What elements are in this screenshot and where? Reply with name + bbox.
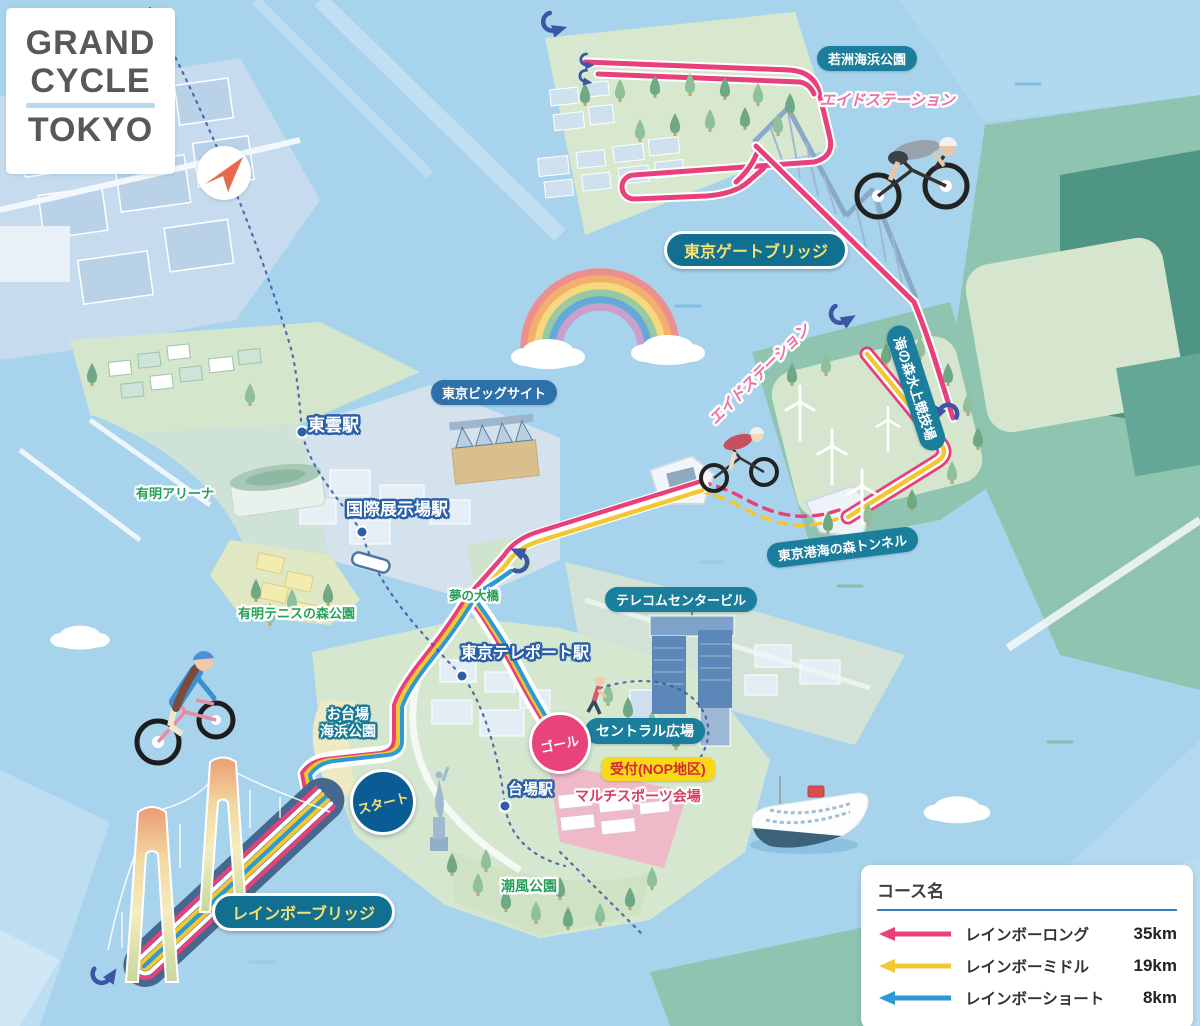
course-long-distance: 35km (1121, 924, 1177, 944)
label-central-plaza: セントラル広場 (585, 718, 705, 744)
label-reception: 受付(NOP地区) (601, 757, 715, 781)
logo-wave-decoration (26, 103, 155, 108)
course-middle-distance: 19km (1121, 956, 1177, 976)
label-daiba-station: 台場駅 (508, 781, 553, 798)
label-ariake-tennis-park: 有明テニスの森公園 (238, 607, 355, 622)
logo-line-2: CYCLE (6, 62, 175, 100)
compass-arrow-icon (197, 146, 251, 200)
course-short-distance: 8km (1121, 988, 1177, 1008)
logo-line-1: GRAND (6, 24, 175, 62)
label-teleport-station: 東京テレポート駅 (461, 645, 589, 663)
legend-row-long: レインボーロング 35km (877, 923, 1177, 945)
label-multi-sport-venue: マルチスポーツ会場 (575, 788, 701, 804)
label-odaiba-park-line2: 海浜公園 (320, 723, 376, 739)
label-wakasu-park: 若洲海浜公園 (817, 46, 917, 71)
label-kokusai-tenjijo-station: 国際展示場駅 (346, 500, 448, 520)
legend-row-middle: レインボーミドル 19km (877, 955, 1177, 977)
logo-line-3: TOKYO (6, 111, 175, 149)
label-shinonome-station: 東雲駅 (308, 416, 359, 436)
label-odaiba-park-line1: お台場 (327, 706, 369, 722)
goal-marker: ゴール (529, 712, 591, 774)
label-shiokaze-park: 潮風公園 (501, 878, 557, 894)
compass (197, 146, 251, 200)
legend-title: コース名 (877, 877, 1177, 909)
legend-divider (877, 909, 1177, 911)
course-long-name: レインボーロング (965, 923, 1111, 945)
legend: コース名 レインボーロング 35km レインボーミドル 19km レインボーショ… (861, 865, 1193, 1026)
start-label: スタート (355, 786, 410, 817)
course-long-arrow-icon (877, 926, 955, 942)
map-stage: GRAND CYCLE TOKYO 若洲海浜公園 エイドステーション 東京ゲート… (0, 0, 1200, 1026)
legend-row-short: レインボーショート 8km (877, 987, 1177, 1009)
label-ariake-arena: 有明アリーナ (136, 487, 214, 502)
label-tokyo-big-sight: 東京ビッグサイト (431, 380, 557, 405)
label-yume-no-ohashi: 夢の大橋 (449, 589, 499, 603)
course-middle-name: レインボーミドル (965, 955, 1111, 977)
goal-label: ゴール (539, 730, 581, 757)
label-tokyo-gate-bridge: 東京ゲートブリッジ (664, 231, 848, 269)
start-marker: スタート (350, 769, 416, 835)
course-middle-arrow-icon (877, 958, 955, 974)
label-aid-station-north: エイドステーション (820, 92, 955, 109)
logo: GRAND CYCLE TOKYO (6, 8, 175, 174)
course-short-name: レインボーショート (965, 987, 1111, 1009)
label-telecom-center: テレコムセンタービル (605, 587, 757, 612)
course-short-arrow-icon (877, 990, 955, 1006)
label-rainbow-bridge: レインボーブリッジ (212, 893, 395, 931)
